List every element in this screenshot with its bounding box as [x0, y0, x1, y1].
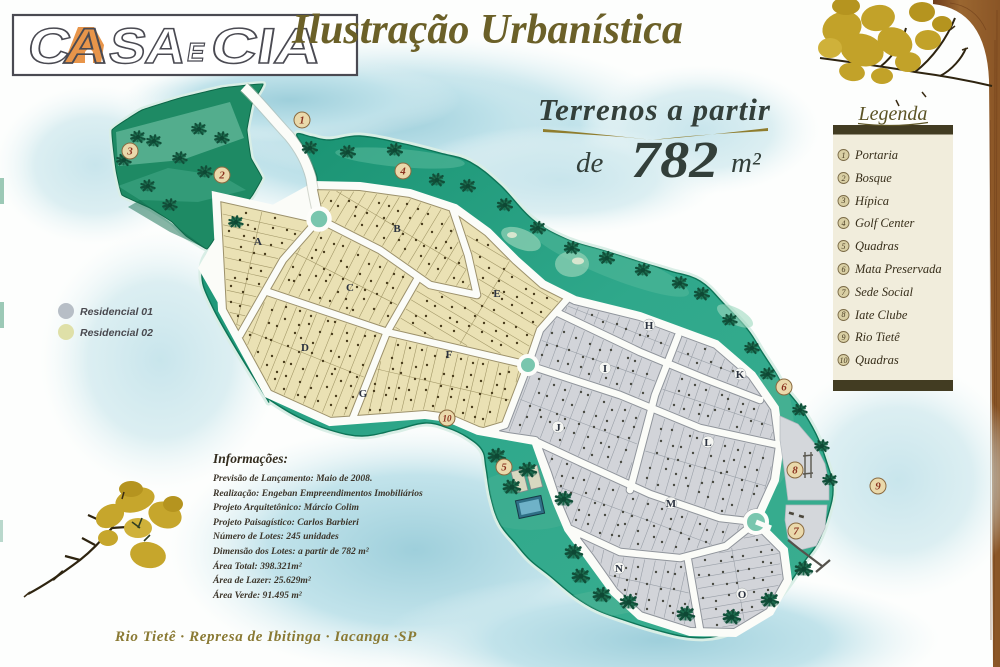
svg-text:9: 9: [842, 333, 846, 342]
svg-text:Número de Lotes: 245 unidades: Número de Lotes: 245 unidades: [212, 531, 339, 542]
svg-text:Realização: Engeban Empreendim: Realização: Engeban Empreendimentos Imob…: [212, 488, 423, 499]
svg-text:Residencial 02: Residencial 02: [80, 327, 153, 339]
svg-text:3: 3: [126, 146, 133, 158]
svg-text:Bosque: Bosque: [855, 171, 892, 185]
svg-text:Legenda: Legenda: [858, 103, 928, 125]
svg-text:6: 6: [842, 265, 846, 274]
svg-text:G: G: [359, 388, 368, 400]
svg-text:1: 1: [842, 151, 846, 160]
svg-text:A: A: [60, 18, 113, 74]
svg-text:Quadras: Quadras: [855, 353, 899, 367]
svg-text:Residencial 01: Residencial 01: [80, 306, 153, 318]
svg-text:I: I: [603, 363, 607, 375]
svg-text:Área Total: 398.321m²: Área Total: 398.321m²: [212, 560, 303, 572]
svg-text:D: D: [301, 342, 309, 354]
svg-text:Informações:: Informações:: [212, 451, 288, 466]
svg-text:Área Verde: 91.495 m²: Área Verde: 91.495 m²: [212, 589, 303, 601]
svg-text:A: A: [254, 236, 262, 248]
svg-text:8: 8: [842, 310, 846, 319]
svg-text:Dimensão dos Lotes: a partir d: Dimensão dos Lotes: a partir de 782 m²: [212, 546, 370, 557]
svg-text:Terrenos a partir: Terrenos a partir: [538, 92, 771, 127]
svg-text:H: H: [645, 320, 654, 332]
svg-text:1: 1: [299, 115, 305, 127]
svg-text:K: K: [736, 369, 745, 381]
svg-text:C: C: [346, 282, 354, 294]
svg-text:B: B: [393, 223, 401, 235]
svg-text:F: F: [446, 349, 453, 361]
svg-text:Hípica: Hípica: [854, 194, 889, 208]
svg-text:Iate Clube: Iate Clube: [854, 308, 908, 322]
svg-text:8: 8: [792, 465, 798, 477]
svg-text:m²: m²: [731, 147, 762, 179]
svg-text:4: 4: [399, 166, 406, 178]
svg-text:5: 5: [501, 462, 507, 474]
svg-text:9: 9: [875, 481, 881, 493]
svg-text:Golf Center: Golf Center: [855, 216, 915, 230]
svg-text:7: 7: [793, 526, 799, 538]
svg-text:Área de Lazer: 25.629m²: Área de Lazer: 25.629m²: [212, 574, 312, 586]
svg-text:6: 6: [781, 382, 787, 394]
svg-text:4: 4: [842, 219, 846, 228]
svg-text:Portaria: Portaria: [854, 148, 898, 162]
svg-text:10: 10: [443, 414, 453, 424]
svg-text:782: 782: [631, 131, 718, 188]
svg-text:N: N: [615, 563, 623, 575]
svg-text:J: J: [555, 422, 561, 434]
svg-text:2: 2: [218, 170, 225, 182]
svg-text:5: 5: [842, 242, 846, 251]
svg-text:Projeto Arquitetônico: Márcio: Projeto Arquitetônico: Márcio Colim: [213, 502, 359, 513]
svg-text:Rio Tietê: Rio Tietê: [854, 330, 900, 344]
svg-text:L: L: [704, 437, 711, 449]
svg-text:Previsão de Lançamento: Maio d: Previsão de Lançamento: Maio de 2008.: [213, 473, 372, 484]
svg-text:2: 2: [842, 174, 846, 183]
svg-text:de: de: [576, 147, 604, 179]
svg-text:Sede Social: Sede Social: [855, 285, 913, 299]
svg-text:Rio Tietê · Represa de Ibiting: Rio Tietê · Represa de Ibitinga · Iacang…: [114, 629, 417, 645]
svg-text:SA: SA: [105, 19, 190, 75]
svg-text:Mata Preservada: Mata Preservada: [854, 262, 942, 276]
svg-text:Quadras: Quadras: [855, 239, 899, 253]
svg-text:Ilustração Urbanística: Ilustração Urbanística: [291, 7, 683, 53]
svg-text:Projeto Paisagístico: Carlos B: Projeto Paisagístico: Carlos Barbieri: [213, 517, 359, 528]
svg-text:M: M: [666, 498, 677, 510]
svg-text:E: E: [493, 288, 500, 300]
svg-text:3: 3: [841, 196, 846, 205]
svg-text:10: 10: [840, 356, 848, 365]
svg-text:O: O: [738, 589, 747, 601]
